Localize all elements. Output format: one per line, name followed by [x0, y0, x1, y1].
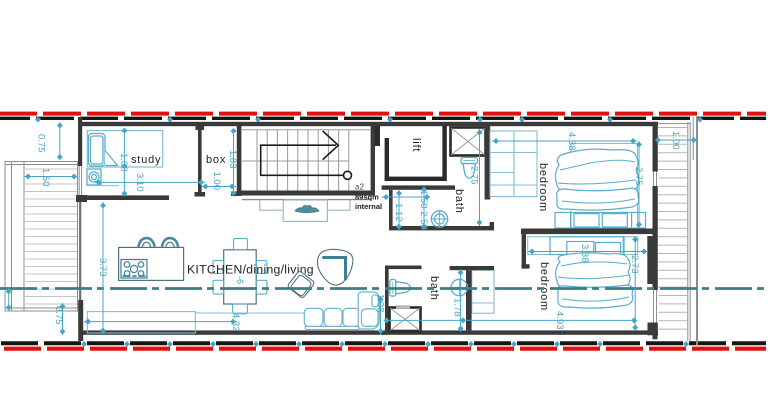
- svg-text:4.93: 4.93: [554, 311, 565, 330]
- svg-text:0.75: 0.75: [36, 134, 47, 153]
- svg-text:0.75: 0.75: [53, 306, 64, 325]
- svg-text:1.78: 1.78: [452, 298, 463, 317]
- svg-text:bedroom: bedroom: [537, 163, 549, 212]
- svg-text:3.38: 3.38: [579, 244, 590, 263]
- svg-text:1.50: 1.50: [40, 168, 51, 187]
- svg-text:89sqm: 89sqm: [355, 193, 379, 202]
- svg-text:3.10: 3.10: [134, 173, 145, 192]
- svg-text:1.88: 1.88: [118, 153, 129, 172]
- svg-text:KITCHEN/dining/living: KITCHEN/dining/living: [187, 263, 314, 277]
- svg-text:bedroom: bedroom: [538, 262, 550, 311]
- svg-text:1.00: 1.00: [211, 172, 222, 191]
- svg-text:-6: -6: [235, 276, 245, 284]
- svg-text:3.73: 3.73: [97, 258, 108, 277]
- svg-text:2.73: 2.73: [629, 255, 640, 274]
- svg-text:box: box: [206, 154, 226, 166]
- svg-text:1.83: 1.83: [227, 150, 238, 169]
- svg-text:a2: a2: [355, 183, 364, 192]
- svg-text:study: study: [131, 154, 161, 166]
- svg-text:1.00: 1.00: [670, 131, 681, 150]
- svg-text:internal: internal: [355, 202, 382, 211]
- svg-text:2.75: 2.75: [469, 166, 480, 185]
- svg-text:1.12: 1.12: [393, 203, 404, 222]
- svg-text:2.75: 2.75: [633, 167, 644, 186]
- svg-text:1.08: 1.08: [375, 294, 386, 313]
- svg-text:bath: bath: [453, 189, 465, 214]
- svg-text:1.50 2.58: 1.50 2.58: [418, 190, 429, 230]
- svg-text:4.38: 4.38: [566, 132, 577, 151]
- svg-text:4.32: 4.32: [230, 313, 241, 332]
- svg-text:lift: lift: [410, 138, 422, 152]
